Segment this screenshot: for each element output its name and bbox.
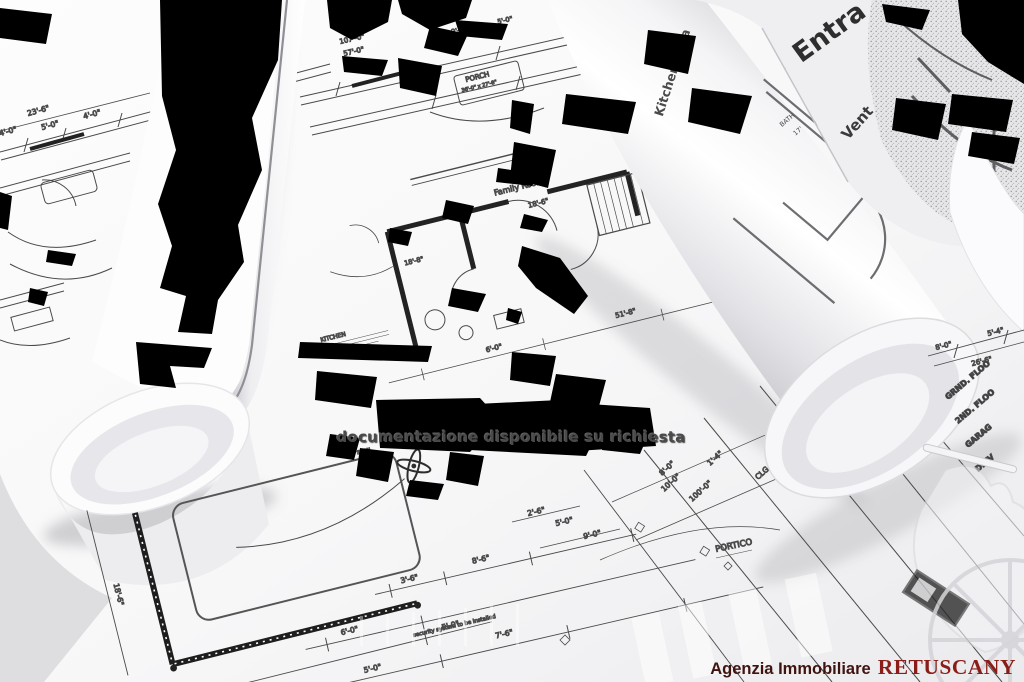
blueprint-photo-canvas: 23'-6" 4'-0" 5'-0" 4'-0" 107'-0" 57'-0" … [0,0,1024,682]
notice-text: documentazione disponibile su richiesta [337,428,686,446]
agency-prefix: Agenzia Immobiliare [710,660,870,679]
agency-watermark: Agenzia Immobiliare RETUSCANY [710,655,1016,680]
blueprint-photo: 23'-6" 4'-0" 5'-0" 4'-0" 107'-0" 57'-0" … [0,0,1024,682]
retuscany-wordmark: RETUSCANY [878,655,1016,680]
